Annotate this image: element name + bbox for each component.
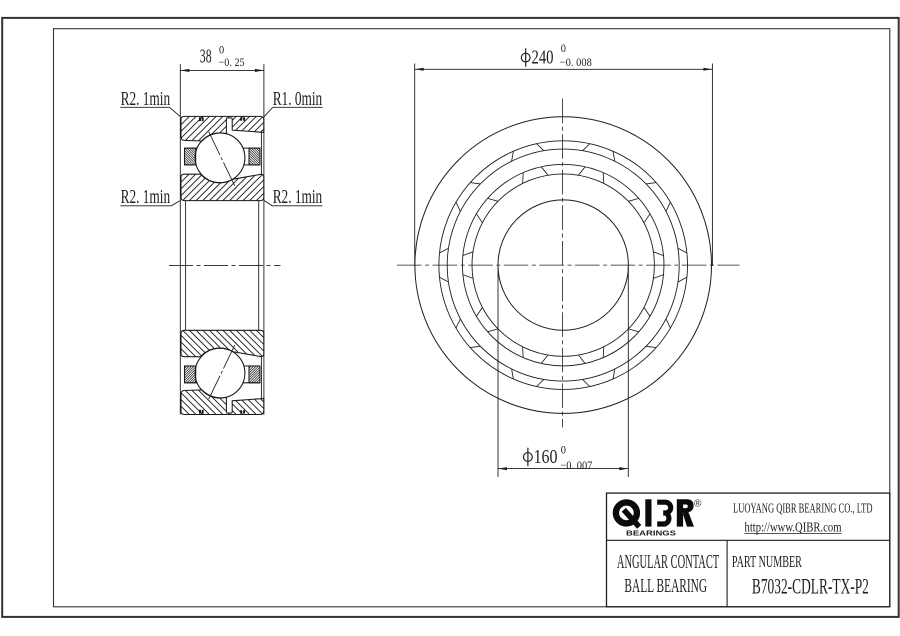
- svg-text:0: 0: [561, 443, 566, 457]
- svg-text:−0. 007: −0. 007: [560, 458, 592, 472]
- svg-text:ANGULAR CONTACT: ANGULAR CONTACT: [617, 551, 720, 573]
- svg-text:R2. 1min: R2. 1min: [273, 187, 323, 208]
- svg-text:R2. 1min: R2. 1min: [121, 187, 171, 208]
- svg-text:38: 38: [200, 47, 212, 68]
- svg-text:160: 160: [534, 447, 558, 468]
- svg-text:R2. 1min: R2. 1min: [121, 89, 171, 110]
- svg-text:BEARINGS: BEARINGS: [626, 528, 676, 537]
- svg-text:−0. 25: −0. 25: [219, 55, 245, 69]
- svg-text:R1. 0min: R1. 0min: [273, 89, 323, 110]
- svg-text:®: ®: [694, 499, 702, 510]
- svg-text:LUOYANG QIBR BEARING CO., LTD: LUOYANG QIBR BEARING CO., LTD: [733, 502, 873, 517]
- svg-text:240: 240: [532, 47, 554, 68]
- svg-text:PART NUMBER: PART NUMBER: [732, 552, 802, 571]
- svg-text:0: 0: [561, 41, 566, 55]
- svg-text:http://www.QIBR.com: http://www.QIBR.com: [745, 520, 842, 535]
- svg-text:BALL BEARING: BALL BEARING: [624, 575, 707, 597]
- svg-text:B7032-CDLR-TX-P2: B7032-CDLR-TX-P2: [752, 574, 869, 599]
- svg-text:−0. 008: −0. 008: [560, 55, 592, 69]
